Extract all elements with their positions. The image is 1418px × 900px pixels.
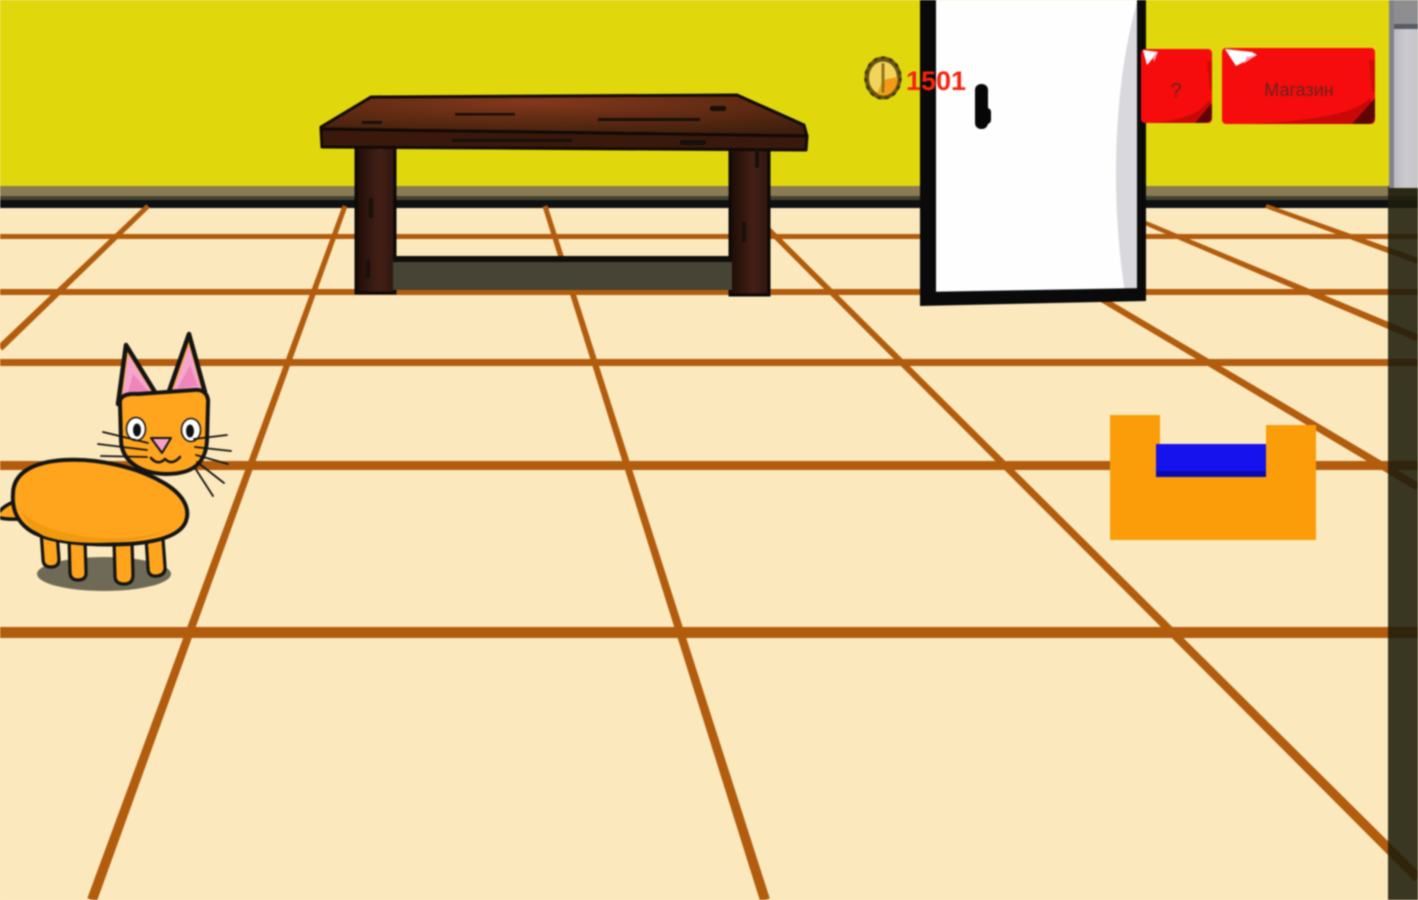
svg-text:?: ? [1170,80,1181,102]
svg-text:1501: 1501 [906,66,966,96]
svg-text:Магазин: Магазин [1264,80,1333,100]
